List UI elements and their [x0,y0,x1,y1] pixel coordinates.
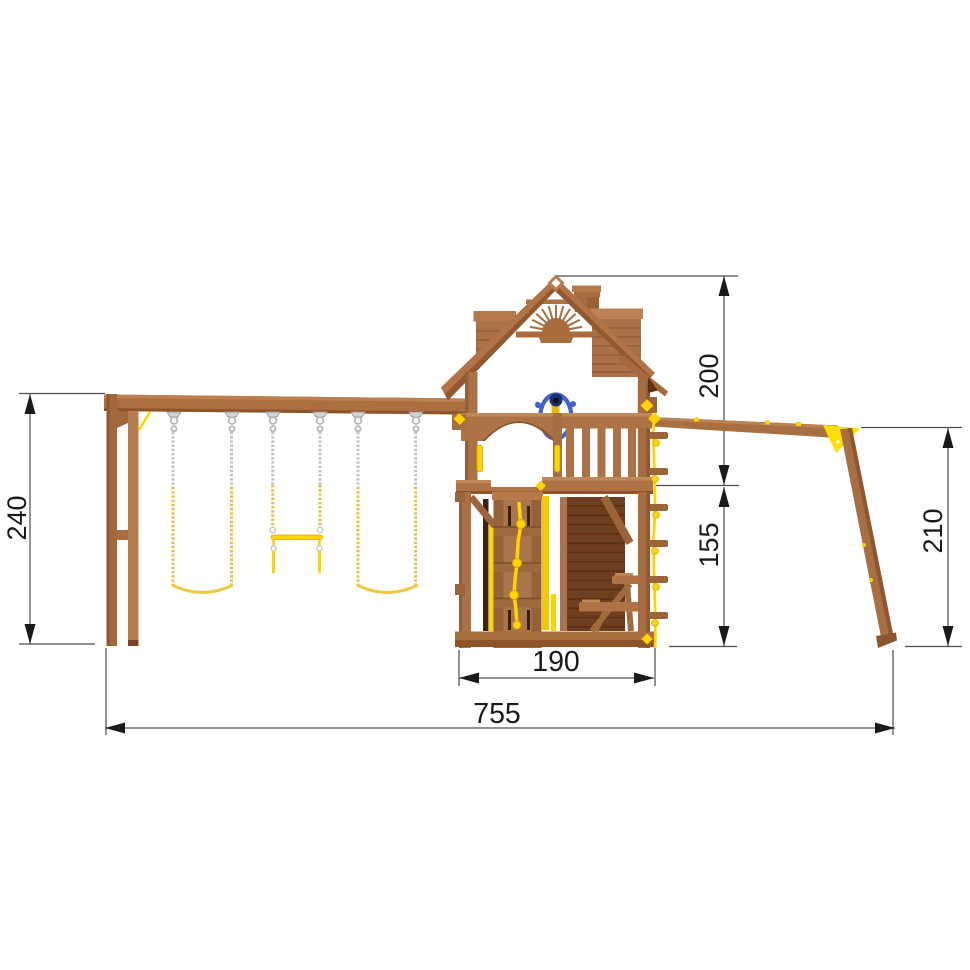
svg-text:155: 155 [694,522,724,567]
svg-text:240: 240 [2,495,32,540]
svg-text:210: 210 [918,508,948,553]
svg-text:190: 190 [532,646,580,678]
svg-text:755: 755 [473,698,521,730]
svg-text:200: 200 [694,353,724,398]
